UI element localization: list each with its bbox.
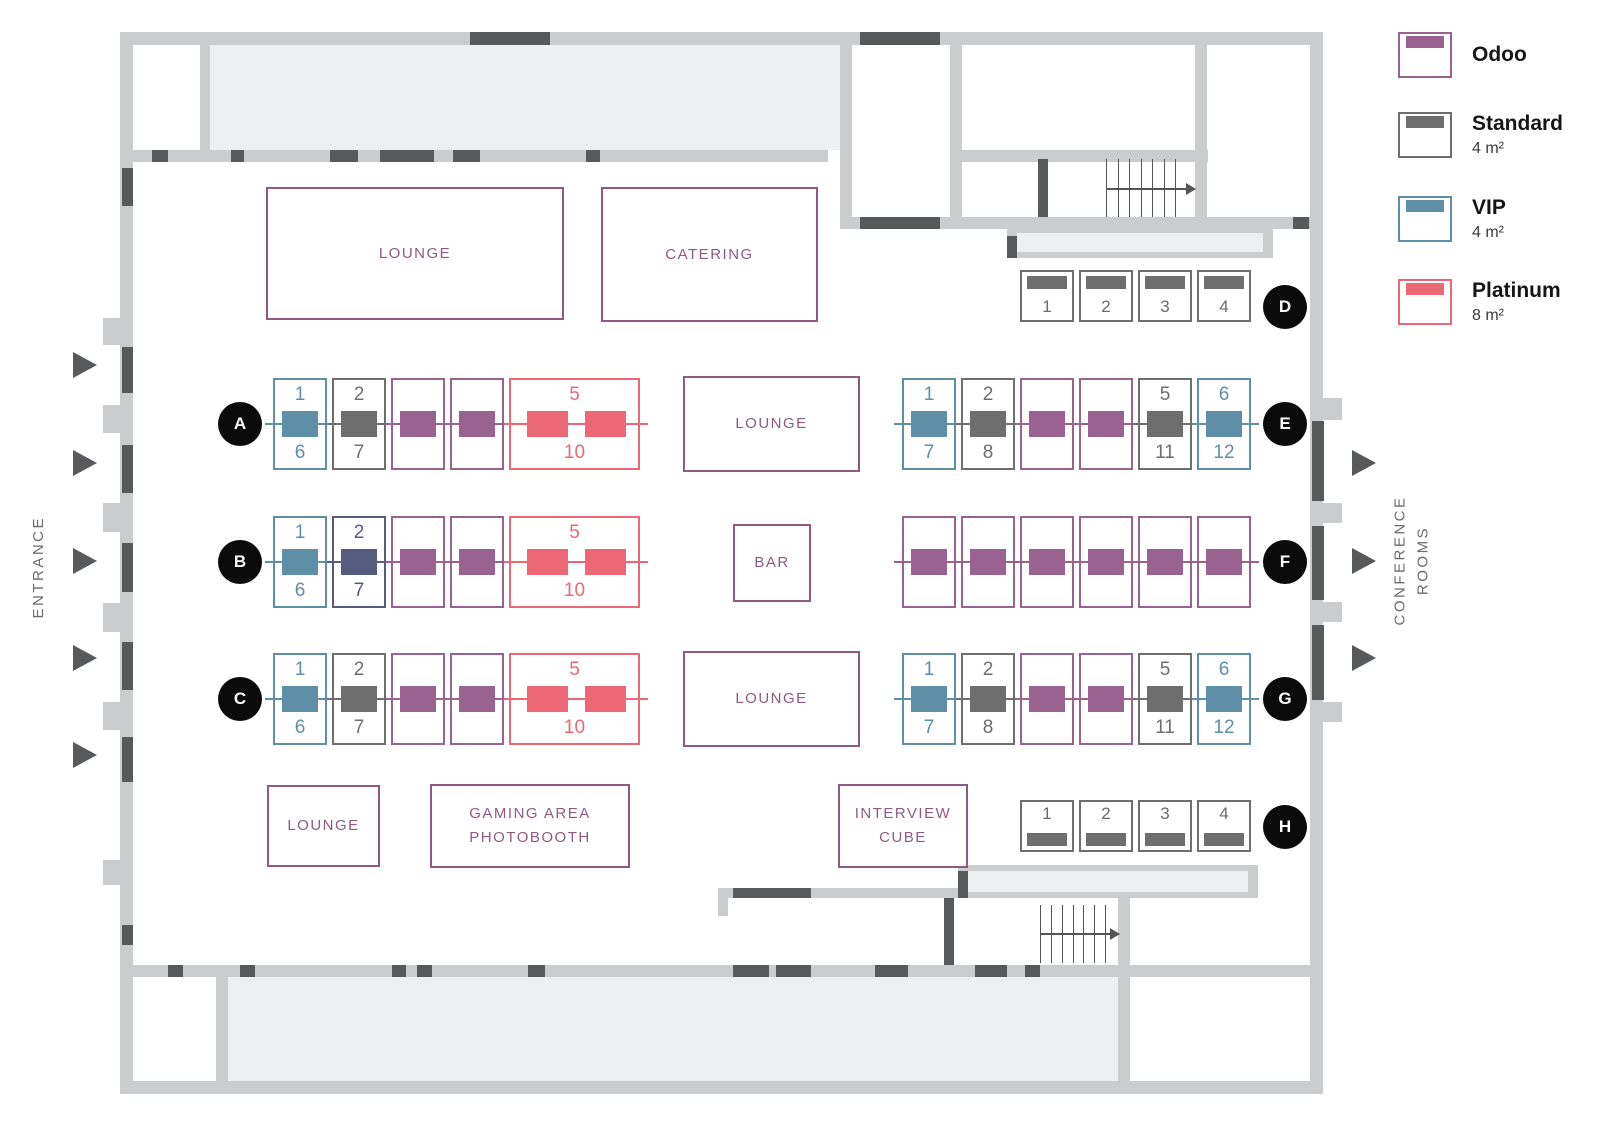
room-interview-cube: INTERVIEW CUBE: [838, 784, 968, 868]
legend-size: 4 m²: [1472, 140, 1563, 158]
booth-standard[interactable]: 3: [1138, 270, 1192, 322]
wall-stub: [1312, 602, 1342, 622]
conference-arrow-icon: [1352, 450, 1376, 476]
entrance-arrow-icon: [73, 450, 97, 476]
wall-stub: [1312, 702, 1342, 722]
booth-vip[interactable]: 16: [273, 378, 327, 470]
booth-platinum[interactable]: 510: [509, 653, 640, 745]
door-opening: [975, 965, 1007, 977]
door-opening: [528, 965, 545, 977]
booth-odoo[interactable]: [450, 378, 504, 470]
booth-odoo[interactable]: [391, 378, 445, 470]
booth-standard[interactable]: 3: [1138, 800, 1192, 852]
room-lounge-mid-upper: LOUNGE: [683, 376, 860, 472]
wall-segment: [120, 1081, 1322, 1094]
room-lounge-top: LOUNGE: [266, 187, 564, 320]
booth-standard[interactable]: 2: [1079, 270, 1133, 322]
standard-booth-icon: [1398, 112, 1452, 158]
booth-connector: [894, 561, 902, 563]
door-opening: [417, 965, 432, 977]
door-opening: [122, 925, 133, 945]
wall-segment: [216, 977, 228, 1082]
booth-standard[interactable]: 4: [1197, 270, 1251, 322]
booth-connector: [640, 423, 648, 425]
booth-odoo[interactable]: [1138, 516, 1192, 608]
room-lounge-mid-lower: LOUNGE: [683, 651, 860, 747]
booth-connector: [894, 698, 902, 700]
legend-item-standard: Standard 4 m²: [1398, 112, 1563, 158]
booth-odoo[interactable]: [1020, 653, 1074, 745]
booth-row-a: 1627510: [273, 378, 640, 470]
entrance-arrow-icon: [73, 742, 97, 768]
legend-item-platinum: Platinum 8 m²: [1398, 279, 1561, 325]
door-opening: [122, 543, 133, 592]
door-opening: [1312, 421, 1324, 501]
booth-standard[interactable]: 27: [332, 653, 386, 745]
wall-stub: [103, 702, 133, 730]
legend-size: 8 m²: [1472, 307, 1561, 325]
booth-row-c: 1627510: [273, 653, 640, 745]
entrance-arrow-icon: [73, 352, 97, 378]
booth-connector: [1251, 561, 1259, 563]
booth-odoo[interactable]: [1197, 516, 1251, 608]
door-opening: [1025, 965, 1040, 977]
room-floor: [228, 977, 1118, 1082]
legend-size: 4 m²: [1472, 224, 1506, 242]
platinum-booth-icon: [1398, 279, 1452, 325]
booth-row-g: 1728511612: [902, 653, 1251, 745]
conference-rooms-label: CONFERENCE ROOMS: [1390, 451, 1435, 671]
legend-label: Platinum: [1472, 279, 1561, 303]
booth-platinum[interactable]: 510: [509, 516, 640, 608]
booth-connector: [1251, 698, 1259, 700]
booth-indigo[interactable]: 27: [332, 516, 386, 608]
booth-connector: [1251, 423, 1259, 425]
odoo-booth-icon: [1398, 32, 1452, 78]
wall-segment: [950, 45, 962, 217]
booth-row-b: 1627510: [273, 516, 640, 608]
booth-row-h: 1234: [1020, 800, 1251, 852]
floor-plan: LOUNGE CATERING LOUNGE BAR LOUNGE LOUNGE…: [0, 0, 1600, 1124]
door-opening: [944, 898, 954, 965]
conference-arrow-icon: [1352, 548, 1376, 574]
door-opening: [231, 150, 244, 162]
room-floor: [210, 45, 840, 150]
booth-row-e: 1728511612: [902, 378, 1251, 470]
door-opening: [733, 888, 811, 898]
booth-row-f: [902, 516, 1251, 608]
counter-surface: [1017, 233, 1263, 252]
wall-segment: [718, 888, 728, 916]
door-opening: [392, 965, 406, 977]
door-opening: [1293, 217, 1309, 229]
booth-standard[interactable]: 1: [1020, 270, 1074, 322]
counter-surface: [968, 871, 1248, 892]
door-opening: [875, 965, 908, 977]
booth-connector: [265, 423, 273, 425]
booth-standard[interactable]: 4: [1197, 800, 1251, 852]
booth-odoo[interactable]: [1079, 516, 1133, 608]
row-marker-b: B: [218, 540, 262, 584]
door-opening: [380, 150, 434, 162]
booth-standard[interactable]: 27: [332, 378, 386, 470]
legend-label: Standard: [1472, 112, 1563, 136]
booth-connector: [640, 561, 648, 563]
booth-connector: [640, 698, 648, 700]
wall-stub: [103, 860, 133, 885]
row-marker-g: G: [1263, 677, 1307, 721]
wall-segment: [1118, 898, 1130, 1082]
booth-standard[interactable]: 2: [1079, 800, 1133, 852]
door-opening: [168, 965, 183, 977]
booth-row-d: 1234: [1020, 270, 1251, 322]
booth-standard[interactable]: 511: [1138, 653, 1192, 745]
booth-vip[interactable]: 16: [273, 653, 327, 745]
door-opening: [122, 737, 133, 782]
booth-vip[interactable]: 17: [902, 378, 956, 470]
door-opening: [1312, 625, 1324, 700]
door-opening: [470, 32, 550, 45]
wall-stub: [1312, 503, 1342, 523]
wall-segment: [1195, 45, 1207, 217]
booth-platinum[interactable]: 510: [509, 378, 640, 470]
row-marker-h: H: [1263, 805, 1307, 849]
legend-label: Odoo: [1472, 43, 1527, 67]
wall-segment: [120, 32, 1322, 45]
row-marker-f: F: [1263, 540, 1307, 584]
door-opening: [586, 150, 600, 162]
booth-odoo[interactable]: [1020, 378, 1074, 470]
room-lounge-bottom: LOUNGE: [267, 785, 380, 867]
booth-odoo[interactable]: [391, 653, 445, 745]
door-opening: [122, 642, 133, 690]
booth-odoo[interactable]: [961, 516, 1015, 608]
door-opening: [330, 150, 358, 162]
booth-odoo[interactable]: [450, 516, 504, 608]
wall-stub: [103, 318, 133, 345]
booth-standard[interactable]: 28: [961, 378, 1015, 470]
row-marker-c: C: [218, 677, 262, 721]
booth-vip[interactable]: 612: [1197, 378, 1251, 470]
booth-standard[interactable]: 511: [1138, 378, 1192, 470]
door-opening: [776, 965, 811, 977]
wall-stub: [1312, 398, 1342, 420]
room-gaming-area-photobooth: GAMING AREA PHOTOBOOTH: [430, 784, 630, 868]
row-marker-e: E: [1263, 402, 1307, 446]
wall-stub: [103, 603, 133, 632]
legend-item-vip: VIP 4 m²: [1398, 196, 1506, 242]
booth-odoo[interactable]: [1079, 378, 1133, 470]
door-opening: [733, 965, 769, 977]
row-marker-d: D: [1263, 285, 1307, 329]
door-opening: [453, 150, 480, 162]
entrance-label: ENTRANCE: [28, 467, 51, 667]
booth-odoo[interactable]: [1020, 516, 1074, 608]
wall-segment: [120, 965, 1310, 977]
wall-stub: [103, 405, 133, 433]
stairs-direction-arrow-icon: [1106, 188, 1186, 190]
legend-item-odoo: Odoo: [1398, 32, 1527, 78]
booth-odoo[interactable]: [391, 516, 445, 608]
entrance-arrow-icon: [73, 548, 97, 574]
door-opening: [860, 32, 940, 45]
row-marker-a: A: [218, 402, 262, 446]
door-opening: [152, 150, 168, 162]
door-opening: [122, 445, 133, 493]
room-bar: BAR: [733, 524, 811, 602]
door-opening: [240, 965, 255, 977]
stairs-direction-arrow-icon: [1110, 928, 1120, 940]
booth-odoo[interactable]: [1079, 653, 1133, 745]
booth-odoo[interactable]: [902, 516, 956, 608]
booth-connector: [894, 423, 902, 425]
booth-connector: [265, 698, 273, 700]
legend-label: VIP: [1472, 196, 1506, 220]
room-catering: CATERING: [601, 187, 818, 322]
door-opening: [1007, 236, 1017, 258]
booth-vip[interactable]: 17: [902, 653, 956, 745]
door-opening: [1038, 159, 1048, 217]
door-opening: [958, 871, 968, 898]
vip-booth-icon: [1398, 196, 1452, 242]
booth-vip[interactable]: 16: [273, 516, 327, 608]
entrance-arrow-icon: [73, 645, 97, 671]
booth-odoo[interactable]: [450, 653, 504, 745]
booth-connector: [265, 561, 273, 563]
door-opening: [860, 217, 940, 229]
conference-arrow-icon: [1352, 645, 1376, 671]
booth-standard[interactable]: 28: [961, 653, 1015, 745]
booth-standard[interactable]: 1: [1020, 800, 1074, 852]
wall-segment: [200, 45, 210, 150]
stairs-direction-arrow-icon: [1186, 183, 1196, 195]
stairs-direction-arrow-icon: [1040, 933, 1110, 935]
door-opening: [122, 168, 133, 206]
booth-vip[interactable]: 612: [1197, 653, 1251, 745]
wall-stub: [103, 503, 133, 532]
wall-segment: [840, 32, 852, 229]
door-opening: [122, 347, 133, 393]
door-opening: [1312, 526, 1324, 600]
